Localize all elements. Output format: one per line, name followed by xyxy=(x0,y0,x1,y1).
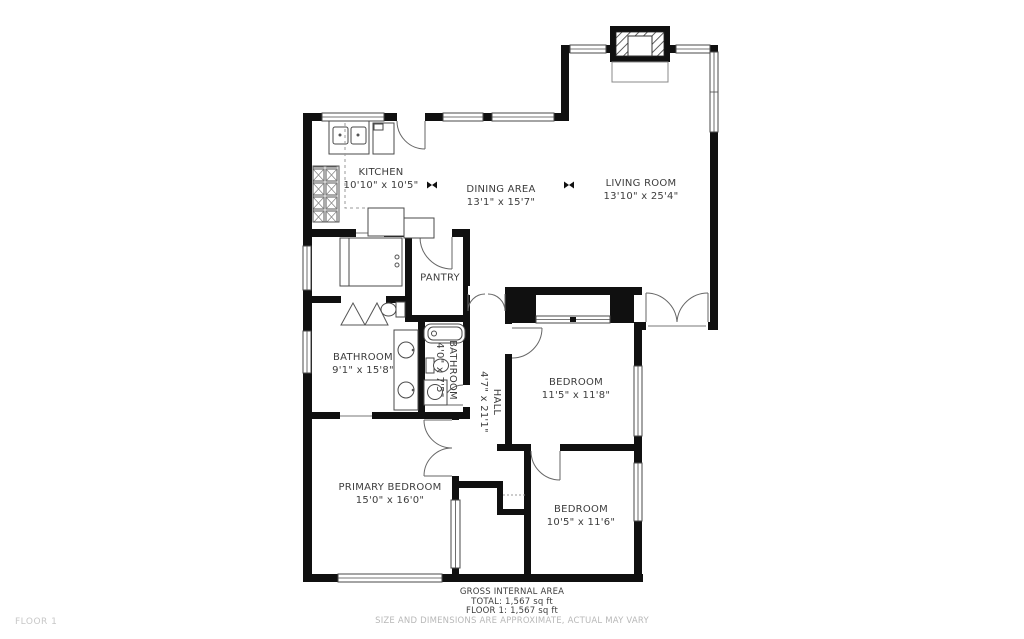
floor-tag: FLOOR 1 xyxy=(15,617,57,627)
wall-bedroomwing-north xyxy=(505,287,642,295)
room-dims: 9'1" x 15'8" xyxy=(332,364,394,377)
room-name: BATHROOM xyxy=(332,351,394,364)
room-name: LIVING ROOM xyxy=(603,177,678,190)
room-name: BATHROOM xyxy=(446,340,459,400)
room-label-bedroom-2: BEDROOM 10'5" x 11'6" xyxy=(547,503,615,529)
bifold-closet-doors xyxy=(341,303,388,325)
opening-bathroom-south xyxy=(340,411,372,420)
room-label-hall: HALL 4'7" x 21'1" xyxy=(477,371,503,433)
wall-laundry-south-a xyxy=(303,296,341,303)
room-dims: 11'5" x 11'8" xyxy=(542,389,610,402)
room-name: KITCHEN xyxy=(343,166,418,179)
room-name: PANTRY xyxy=(420,272,460,285)
bedroom1-door xyxy=(512,328,542,358)
room-label-bedroom-1: BEDROOM 11'5" x 11'8" xyxy=(542,376,610,402)
room-label-living-room: LIVING ROOM 13'10" x 25'4" xyxy=(603,177,678,203)
wall-hall-east xyxy=(505,287,512,451)
hearth xyxy=(612,62,668,82)
opening-bedroom1-door xyxy=(504,324,513,354)
wall-pantry-west xyxy=(405,236,412,322)
bedroom2-door xyxy=(531,451,560,480)
wall-bathroom-south xyxy=(303,412,470,419)
floorplan-canvas xyxy=(0,0,1024,639)
pantry-door xyxy=(420,237,452,269)
kitchen-range xyxy=(313,166,339,222)
wall-closet-top xyxy=(452,481,503,488)
room-name: PRIMARY BEDROOM xyxy=(339,481,442,494)
room-name: BEDROOM xyxy=(542,376,610,389)
primary-double-doors xyxy=(424,420,452,476)
kitchen-sink xyxy=(329,121,369,154)
laundry-unit xyxy=(340,238,402,286)
opening-bifold-closet xyxy=(341,295,386,304)
room-dims: 15'0" x 16'0" xyxy=(339,494,442,507)
wall-step-living xyxy=(561,45,569,121)
floorplan-page: KITCHEN 10'10" x 10'5" DINING AREA 13'1"… xyxy=(0,0,1024,639)
wall-closet1-stub-right xyxy=(610,294,634,323)
toilet-bathroom1 xyxy=(381,302,405,317)
room-dims: 13'1" x 15'7" xyxy=(466,196,535,209)
room-label-primary-bedroom: PRIMARY BEDROOM 15'0" x 16'0" xyxy=(339,481,442,507)
wall-bedroom1-south xyxy=(497,444,642,451)
footer: GROSS INTERNAL AREA TOTAL: 1,567 sq ft F… xyxy=(375,588,649,626)
double-vanity xyxy=(394,330,418,410)
room-label-pantry: PANTRY xyxy=(420,272,460,285)
room-dims: 10'5" x 11'6" xyxy=(547,516,615,529)
hall-double-door xyxy=(468,294,505,311)
opening-hall-north xyxy=(468,286,505,295)
opening-bedroom2-door xyxy=(531,443,560,452)
wall-east-bedrooms xyxy=(634,322,642,582)
room-name: BEDROOM xyxy=(547,503,615,516)
wall-closet1-stub-left xyxy=(512,294,536,323)
room-dims: 4'0" x 7'5" xyxy=(433,340,446,400)
room-label-kitchen: KITCHEN 10'10" x 10'5" xyxy=(343,166,418,192)
opening-primary-doors xyxy=(451,420,460,476)
room-label-bathroom-2: BATHROOM 4'0" x 7'5" xyxy=(433,340,459,400)
entry-door xyxy=(397,121,425,149)
opening-entry-door xyxy=(397,112,425,122)
room-name: DINING AREA xyxy=(466,183,535,196)
kitchen-island xyxy=(368,208,434,238)
room-label-dining-area: DINING AREA 13'1" x 15'7" xyxy=(466,183,535,209)
footer-disclaimer: SIZE AND DIMENSIONS ARE APPROXIMATE, ACT… xyxy=(375,617,649,627)
opening-bathroom2-door xyxy=(462,385,471,407)
room-label-bathroom-1: BATHROOM 9'1" x 15'8" xyxy=(332,351,394,377)
room-dims: 4'7" x 21'1" xyxy=(477,371,490,433)
living-patio-doors xyxy=(646,293,708,322)
wall-pantry-south xyxy=(405,315,470,322)
kitchen-appliance xyxy=(373,123,394,154)
room-name: HALL xyxy=(490,371,503,433)
fireplace xyxy=(610,26,670,82)
wall-bedroom2-west xyxy=(524,448,531,574)
room-dims: 13'10" x 25'4" xyxy=(603,190,678,203)
door-arcs xyxy=(397,121,708,480)
room-dims: 10'10" x 10'5" xyxy=(343,179,418,192)
